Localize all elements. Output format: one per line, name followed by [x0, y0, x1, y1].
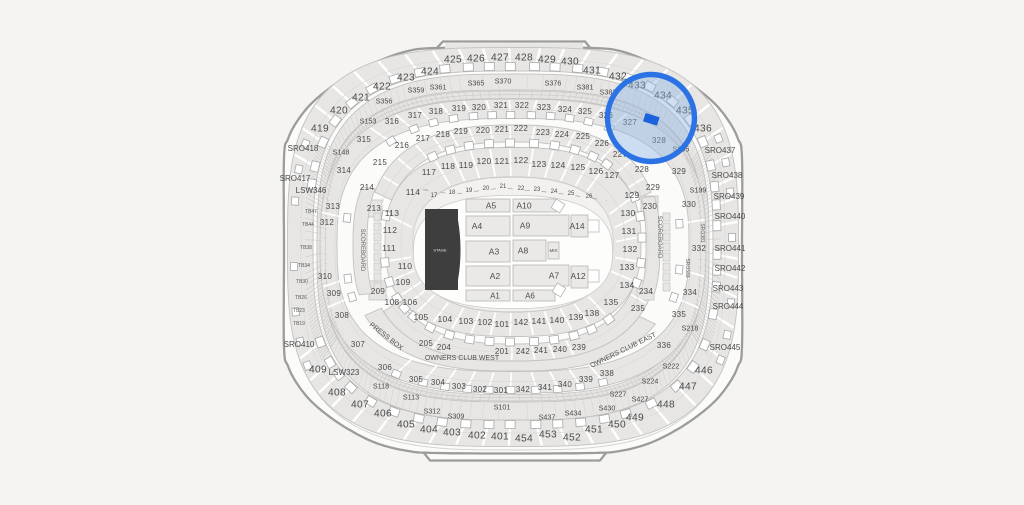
- svg-text:330: 330: [682, 200, 696, 209]
- svg-text:117: 117: [422, 167, 436, 177]
- svg-text:430: 430: [561, 57, 579, 68]
- svg-text:S153: S153: [360, 117, 377, 126]
- svg-text:125: 125: [570, 162, 585, 172]
- svg-text:229: 229: [646, 183, 660, 192]
- svg-text:305: 305: [409, 375, 423, 384]
- svg-text:SRO444: SRO444: [713, 302, 744, 311]
- svg-text:26: 26: [586, 194, 593, 200]
- svg-text:404: 404: [420, 425, 438, 436]
- svg-text:A1: A1: [490, 291, 500, 300]
- svg-text:SRO443: SRO443: [713, 284, 744, 293]
- svg-text:419: 419: [311, 124, 329, 135]
- svg-text:TB19: TB19: [293, 321, 305, 327]
- svg-text:239: 239: [572, 343, 586, 352]
- svg-text:429: 429: [538, 55, 556, 66]
- svg-text:214: 214: [360, 183, 374, 192]
- svg-text:324: 324: [558, 105, 572, 114]
- svg-text:TB23: TB23: [293, 308, 305, 314]
- svg-text:320: 320: [472, 103, 486, 112]
- svg-text:SRO418: SRO418: [288, 144, 319, 153]
- svg-text:408: 408: [328, 388, 346, 399]
- svg-text:230: 230: [643, 202, 657, 211]
- svg-text:A12: A12: [570, 271, 585, 281]
- svg-text:221: 221: [495, 125, 509, 134]
- svg-text:TB26: TB26: [295, 295, 307, 301]
- svg-text:217: 217: [416, 134, 430, 143]
- svg-text:SRO410: SRO410: [284, 340, 315, 349]
- svg-text:422: 422: [373, 82, 391, 93]
- svg-text:STAGE: STAGE: [433, 248, 447, 253]
- svg-text:240: 240: [553, 345, 567, 354]
- svg-text:119: 119: [459, 160, 473, 170]
- svg-text:108: 108: [384, 297, 399, 307]
- svg-text:19: 19: [466, 188, 473, 194]
- svg-text:SRO442: SRO442: [715, 264, 746, 273]
- svg-text:406: 406: [374, 409, 392, 420]
- svg-text:120: 120: [476, 156, 491, 166]
- svg-text:304: 304: [431, 378, 445, 387]
- svg-text:315: 315: [357, 135, 371, 144]
- svg-text:113: 113: [385, 208, 399, 218]
- svg-text:306: 306: [378, 363, 392, 372]
- svg-text:25: 25: [568, 191, 575, 197]
- svg-text:106: 106: [402, 297, 417, 307]
- svg-text:A2: A2: [490, 271, 501, 281]
- svg-text:SRO445: SRO445: [710, 343, 741, 352]
- svg-text:204: 204: [437, 343, 451, 352]
- svg-text:308: 308: [335, 311, 349, 320]
- svg-text:118: 118: [441, 161, 455, 171]
- svg-text:307: 307: [351, 340, 365, 349]
- svg-text:103: 103: [458, 316, 473, 326]
- svg-text:135: 135: [603, 297, 618, 307]
- svg-text:316: 316: [385, 117, 399, 126]
- svg-text:20: 20: [483, 186, 490, 192]
- svg-text:301: 301: [494, 386, 508, 395]
- svg-text:S356: S356: [376, 97, 393, 106]
- svg-text:235: 235: [631, 304, 645, 313]
- svg-text:S365: S365: [468, 79, 485, 88]
- svg-text:401: 401: [491, 432, 509, 443]
- svg-text:21: 21: [500, 184, 507, 190]
- svg-text:234: 234: [639, 287, 653, 296]
- svg-text:A4: A4: [472, 221, 483, 231]
- svg-text:216: 216: [395, 141, 409, 150]
- svg-text:309: 309: [327, 289, 341, 298]
- svg-text:S227: S227: [610, 390, 627, 399]
- svg-text:322: 322: [515, 101, 529, 110]
- svg-text:215: 215: [373, 158, 387, 167]
- svg-text:241: 241: [534, 346, 548, 355]
- svg-text:A8: A8: [518, 246, 529, 256]
- svg-text:TB38: TB38: [300, 245, 312, 251]
- svg-text:321: 321: [494, 101, 508, 110]
- svg-text:318: 318: [429, 107, 443, 116]
- svg-text:A6: A6: [525, 291, 535, 300]
- svg-text:317: 317: [408, 111, 422, 120]
- svg-text:449: 449: [626, 413, 644, 424]
- svg-text:A3: A3: [489, 247, 500, 257]
- svg-text:205: 205: [419, 339, 433, 348]
- svg-text:S101: S101: [494, 403, 511, 412]
- svg-text:A14: A14: [569, 221, 584, 231]
- svg-text:S381: S381: [577, 83, 594, 92]
- svg-text:329: 329: [672, 167, 686, 176]
- svg-text:454: 454: [515, 434, 533, 445]
- svg-text:141: 141: [531, 316, 546, 326]
- svg-text:335: 335: [672, 310, 686, 319]
- svg-text:405: 405: [397, 420, 415, 431]
- svg-text:225: 225: [576, 132, 590, 141]
- svg-text:17: 17: [431, 193, 438, 199]
- svg-text:302: 302: [473, 385, 487, 394]
- svg-text:S309: S309: [448, 412, 465, 421]
- svg-text:LSW346: LSW346: [296, 186, 327, 195]
- svg-text:134: 134: [619, 280, 634, 290]
- svg-text:SRO437: SRO437: [705, 146, 736, 155]
- svg-text:LSW323: LSW323: [329, 368, 360, 377]
- svg-text:S199: S199: [690, 186, 707, 195]
- svg-text:TB44: TB44: [302, 222, 314, 228]
- svg-text:446: 446: [695, 366, 713, 377]
- svg-text:127: 127: [604, 170, 619, 180]
- svg-text:407: 407: [351, 400, 369, 411]
- svg-text:109: 109: [395, 277, 410, 287]
- svg-text:S437: S437: [539, 413, 556, 422]
- svg-text:SCOREBOARD: SCOREBOARD: [656, 216, 662, 259]
- svg-text:313: 313: [326, 202, 340, 211]
- svg-text:447: 447: [679, 382, 697, 393]
- svg-text:133: 133: [619, 262, 634, 272]
- svg-text:S434: S434: [565, 409, 582, 418]
- svg-text:SRO440: SRO440: [715, 212, 746, 221]
- svg-text:224: 224: [555, 130, 569, 139]
- svg-text:450: 450: [608, 420, 626, 431]
- svg-text:325: 325: [578, 107, 592, 116]
- svg-text:129: 129: [624, 190, 639, 200]
- svg-text:228: 228: [635, 165, 649, 174]
- svg-text:425: 425: [444, 55, 462, 66]
- svg-text:453: 453: [539, 430, 557, 441]
- svg-text:332: 332: [692, 244, 706, 253]
- svg-text:448: 448: [657, 400, 675, 411]
- svg-text:104: 104: [437, 314, 452, 324]
- svg-text:112: 112: [383, 225, 397, 235]
- svg-text:423: 423: [397, 73, 415, 84]
- svg-text:22: 22: [518, 186, 525, 192]
- svg-text:242: 242: [516, 347, 530, 356]
- svg-text:319: 319: [452, 104, 466, 113]
- svg-text:303: 303: [452, 382, 466, 391]
- svg-text:409: 409: [309, 365, 327, 376]
- svg-text:124: 124: [550, 160, 565, 170]
- svg-text:340: 340: [558, 380, 572, 389]
- svg-text:S113: S113: [403, 393, 419, 402]
- svg-text:MIX: MIX: [549, 248, 557, 253]
- svg-text:A10: A10: [516, 201, 531, 211]
- svg-text:420: 420: [330, 106, 348, 117]
- svg-text:A5: A5: [486, 201, 497, 211]
- svg-text:220: 220: [476, 126, 490, 135]
- svg-text:219: 219: [454, 127, 468, 136]
- svg-text:S224: S224: [642, 377, 659, 386]
- svg-text:140: 140: [549, 315, 564, 325]
- svg-text:SRO438: SRO438: [712, 171, 743, 180]
- svg-text:431: 431: [583, 66, 601, 77]
- svg-text:S312: S312: [424, 407, 441, 416]
- svg-text:132: 132: [622, 244, 637, 254]
- svg-text:S370: S370: [495, 77, 512, 86]
- svg-text:S430: S430: [599, 404, 616, 413]
- svg-text:122: 122: [513, 155, 528, 165]
- svg-text:314: 314: [337, 166, 351, 175]
- svg-text:310: 310: [318, 272, 332, 281]
- svg-text:SRO383: SRO383: [684, 258, 690, 277]
- svg-text:S361: S361: [430, 83, 447, 92]
- svg-text:123: 123: [531, 159, 546, 169]
- svg-text:451: 451: [585, 425, 603, 436]
- svg-text:341: 341: [538, 383, 552, 392]
- svg-text:218: 218: [436, 130, 450, 139]
- svg-text:436: 436: [694, 124, 712, 135]
- svg-text:223: 223: [536, 128, 550, 137]
- svg-text:TB30: TB30: [296, 279, 308, 285]
- svg-text:312: 312: [320, 218, 334, 227]
- svg-text:131: 131: [621, 226, 636, 236]
- svg-text:18: 18: [449, 190, 456, 196]
- svg-text:SRO439: SRO439: [714, 192, 745, 201]
- svg-text:SRO417: SRO417: [280, 174, 311, 183]
- svg-text:424: 424: [421, 67, 439, 78]
- svg-text:421: 421: [352, 93, 370, 104]
- svg-text:428: 428: [515, 53, 533, 64]
- svg-text:142: 142: [513, 317, 528, 327]
- svg-text:S222: S222: [663, 362, 680, 371]
- svg-text:110: 110: [398, 261, 412, 271]
- svg-text:138: 138: [584, 308, 599, 318]
- svg-text:226: 226: [595, 139, 609, 148]
- svg-text:213: 213: [367, 204, 381, 213]
- svg-text:S359: S359: [408, 86, 425, 95]
- svg-text:24: 24: [551, 189, 558, 195]
- svg-text:TB34: TB34: [298, 263, 310, 269]
- svg-text:114: 114: [406, 187, 420, 197]
- svg-text:222: 222: [514, 124, 528, 133]
- svg-text:338: 338: [600, 369, 614, 378]
- svg-text:126: 126: [588, 166, 603, 176]
- svg-text:111: 111: [382, 243, 396, 253]
- svg-text:S148: S148: [333, 148, 350, 157]
- svg-text:SCOREBOARD: SCOREBOARD: [359, 229, 365, 272]
- svg-text:130: 130: [620, 208, 635, 218]
- svg-text:323: 323: [537, 103, 551, 112]
- svg-text:427: 427: [491, 53, 509, 64]
- svg-text:A9: A9: [520, 221, 531, 231]
- svg-text:SRO381: SRO381: [699, 223, 705, 242]
- svg-text:TB47: TB47: [305, 209, 317, 215]
- svg-text:S118: S118: [373, 382, 389, 391]
- svg-text:101: 101: [494, 319, 509, 329]
- svg-text:SRO441: SRO441: [715, 244, 746, 253]
- svg-text:102: 102: [477, 317, 492, 327]
- svg-text:342: 342: [516, 385, 530, 394]
- svg-text:336: 336: [657, 341, 671, 350]
- svg-text:139: 139: [568, 312, 583, 322]
- svg-text:S427: S427: [632, 395, 649, 404]
- svg-text:339: 339: [579, 375, 593, 384]
- svg-text:23: 23: [534, 187, 541, 193]
- svg-text:452: 452: [563, 433, 581, 444]
- svg-text:121: 121: [494, 156, 509, 166]
- svg-text:OWNERS CLUB WEST: OWNERS CLUB WEST: [425, 355, 500, 362]
- svg-text:426: 426: [467, 54, 485, 65]
- svg-text:402: 402: [468, 431, 486, 442]
- svg-text:403: 403: [443, 428, 461, 439]
- svg-text:S376: S376: [545, 79, 562, 88]
- svg-text:334: 334: [683, 288, 697, 297]
- svg-text:209: 209: [371, 287, 385, 296]
- svg-text:A7: A7: [549, 271, 560, 281]
- svg-text:105: 105: [413, 312, 428, 322]
- svg-text:S218: S218: [682, 324, 699, 333]
